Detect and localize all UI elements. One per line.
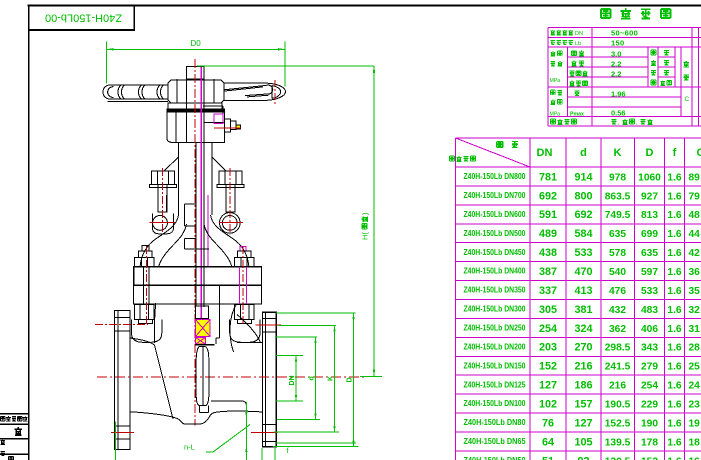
svg-text:1.6: 1.6 [667, 400, 681, 411]
svg-text:51: 51 [542, 455, 554, 460]
svg-text:105: 105 [574, 436, 592, 448]
svg-text:DN: DN [537, 147, 553, 159]
svg-text:1.6: 1.6 [667, 437, 681, 448]
svg-text:23: 23 [689, 400, 701, 411]
svg-text:、: 、 [618, 121, 623, 127]
svg-text:36: 36 [689, 267, 701, 278]
svg-text:337: 337 [539, 285, 557, 297]
svg-text:432: 432 [609, 305, 626, 316]
svg-text:35: 35 [689, 286, 701, 297]
svg-text:1.6: 1.6 [667, 172, 681, 183]
svg-text:190: 190 [641, 418, 658, 429]
svg-text:270: 270 [574, 342, 592, 354]
svg-text:Pmax: Pmax [570, 112, 584, 118]
svg-text:16: 16 [689, 456, 701, 460]
svg-text:Z40H-150Lb DN80: Z40H-150Lb DN80 [464, 418, 526, 427]
svg-text:25: 25 [689, 362, 701, 373]
svg-text:3.0: 3.0 [611, 49, 621, 58]
svg-text:C: C [685, 96, 690, 103]
svg-text:Z40H-150Lb DN500: Z40H-150Lb DN500 [464, 229, 526, 238]
svg-text:44: 44 [689, 229, 701, 240]
svg-text:DN: DN [289, 375, 296, 385]
svg-text:Z40H-150Lb DN700: Z40H-150Lb DN700 [464, 191, 526, 200]
svg-text:533: 533 [641, 286, 658, 297]
svg-text:Z40H-150Lb-00: Z40H-150Lb-00 [45, 12, 122, 24]
svg-text:1.6: 1.6 [667, 362, 681, 373]
svg-text:K: K [328, 376, 335, 381]
svg-text:18: 18 [689, 437, 701, 448]
svg-text:413: 413 [574, 285, 592, 297]
svg-text:1.6: 1.6 [667, 191, 681, 202]
svg-text:Z40H-150Lb DN150: Z40H-150Lb DN150 [464, 361, 526, 370]
svg-text:489: 489 [539, 228, 557, 240]
svg-text:438: 438 [539, 247, 557, 259]
svg-text:28: 28 [689, 343, 701, 354]
svg-text:64: 64 [542, 436, 554, 448]
svg-text:48: 48 [689, 210, 701, 221]
svg-text:476: 476 [609, 286, 626, 297]
svg-text:1060: 1060 [638, 172, 661, 183]
svg-text:978: 978 [609, 172, 626, 183]
svg-text:150: 150 [611, 38, 624, 47]
svg-text:139.5: 139.5 [605, 437, 631, 448]
svg-text:f: f [673, 147, 677, 159]
svg-text:203: 203 [539, 342, 557, 354]
svg-text:1.6: 1.6 [667, 229, 681, 240]
svg-text:470: 470 [574, 266, 592, 278]
svg-text:298.5: 298.5 [605, 343, 631, 354]
svg-text:591: 591 [539, 209, 557, 221]
svg-text:927: 927 [641, 191, 658, 202]
svg-text:635: 635 [641, 248, 658, 259]
svg-text:863.5: 863.5 [605, 191, 631, 202]
svg-text:1.6: 1.6 [667, 324, 681, 335]
svg-text:800: 800 [574, 190, 592, 202]
svg-text:Z40H-150Lb DN400: Z40H-150Lb DN400 [464, 267, 526, 276]
svg-text:152.5: 152.5 [605, 418, 631, 429]
svg-text:32: 32 [689, 305, 701, 316]
svg-text:1.6: 1.6 [667, 267, 681, 278]
svg-text:305: 305 [539, 304, 557, 316]
svg-text:914: 914 [574, 171, 592, 183]
svg-text:C: C [697, 147, 701, 159]
svg-text:157: 157 [574, 399, 592, 411]
svg-text:1.6: 1.6 [667, 343, 681, 354]
svg-text:MPa: MPa [550, 78, 561, 84]
svg-text:1.6: 1.6 [667, 418, 681, 429]
svg-text:Z40H-150Lb DN50: Z40H-150Lb DN50 [464, 456, 526, 460]
svg-text:254: 254 [641, 381, 658, 392]
svg-text:540: 540 [609, 267, 626, 278]
svg-text:Z40H-150Lb DN350: Z40H-150Lb DN350 [464, 286, 526, 295]
svg-text:2.2: 2.2 [611, 69, 621, 78]
svg-text:178: 178 [641, 437, 658, 448]
svg-text:n-L: n-L [184, 443, 195, 452]
svg-text:254: 254 [539, 323, 557, 335]
svg-text:533: 533 [574, 247, 592, 259]
svg-text:92: 92 [577, 455, 589, 460]
svg-text:D: D [347, 377, 354, 382]
svg-text:102: 102 [539, 399, 557, 411]
svg-text:42: 42 [689, 248, 701, 259]
svg-text:279: 279 [641, 362, 658, 373]
svg-text:324: 324 [574, 323, 592, 335]
svg-text:76: 76 [542, 417, 554, 429]
svg-text:79: 79 [689, 191, 701, 202]
svg-text:Z40H-150Lb DN65: Z40H-150Lb DN65 [464, 437, 526, 446]
svg-text:Z40H-150Lb DN250: Z40H-150Lb DN250 [464, 324, 526, 333]
svg-text:D: D [646, 147, 654, 159]
svg-text:Z40H-150Lb DN100: Z40H-150Lb DN100 [464, 399, 526, 408]
svg-text:d: d [580, 147, 587, 159]
svg-text:31: 31 [689, 324, 701, 335]
svg-text:127: 127 [539, 380, 557, 392]
svg-text:Lb: Lb [575, 41, 581, 47]
svg-text:Z40H-150Lb DN800: Z40H-150Lb DN800 [464, 172, 526, 181]
svg-text:813: 813 [641, 210, 658, 221]
svg-text:Z40H-150Lb DN600: Z40H-150Lb DN600 [464, 210, 526, 219]
svg-text:50~600: 50~600 [611, 28, 638, 37]
svg-text:387: 387 [539, 266, 557, 278]
svg-text:241.5: 241.5 [605, 362, 631, 373]
svg-text:152: 152 [641, 456, 658, 460]
svg-text:1.6: 1.6 [667, 248, 681, 259]
svg-text:343: 343 [641, 343, 658, 354]
svg-text:781: 781 [539, 171, 557, 183]
svg-text:d: d [309, 376, 316, 380]
svg-text:692: 692 [574, 209, 592, 221]
svg-text:89: 89 [689, 172, 701, 183]
svg-text:216: 216 [574, 361, 592, 373]
svg-text:0.56: 0.56 [611, 108, 626, 117]
svg-text:186: 186 [574, 380, 592, 392]
svg-text:1.6: 1.6 [667, 286, 681, 297]
svg-text:578: 578 [609, 248, 626, 259]
svg-text:19: 19 [689, 418, 701, 429]
svg-text:597: 597 [641, 267, 658, 278]
svg-text:362: 362 [609, 324, 626, 335]
svg-text:1.6: 1.6 [667, 456, 681, 460]
svg-text:DN: DN [575, 31, 583, 37]
svg-text:Z40H-150Lb DN200: Z40H-150Lb DN200 [464, 342, 526, 351]
svg-text:MPa: MPa [550, 112, 561, 118]
svg-text:749.5: 749.5 [605, 210, 631, 221]
svg-text:K: K [614, 147, 622, 159]
svg-text:120.5: 120.5 [605, 456, 631, 460]
svg-text:1.96: 1.96 [611, 89, 626, 98]
svg-text:Z40H-150Lb DN450: Z40H-150Lb DN450 [464, 248, 526, 257]
svg-text:692: 692 [539, 190, 557, 202]
svg-text:584: 584 [574, 228, 592, 240]
svg-text:190.5: 190.5 [605, 400, 631, 411]
svg-text:Z40H-150Lb DN125: Z40H-150Lb DN125 [464, 380, 526, 389]
svg-text:381: 381 [574, 304, 592, 316]
svg-text:216: 216 [609, 381, 626, 392]
svg-text:1.6: 1.6 [667, 210, 681, 221]
svg-text:699: 699 [641, 229, 658, 240]
svg-text:229: 229 [641, 400, 658, 411]
svg-text:D0: D0 [191, 39, 202, 48]
svg-text:127: 127 [574, 417, 592, 429]
svg-text:152: 152 [539, 361, 557, 373]
svg-text:1.6: 1.6 [667, 381, 681, 392]
svg-text:406: 406 [641, 324, 658, 335]
svg-text:、: 、 [636, 121, 641, 127]
svg-text:H(: H( [361, 232, 370, 240]
svg-text:635: 635 [609, 229, 626, 240]
svg-text:1.6: 1.6 [667, 305, 681, 316]
svg-text:483: 483 [641, 305, 658, 316]
svg-text:24: 24 [689, 381, 701, 392]
svg-text:Z40H-150Lb DN300: Z40H-150Lb DN300 [464, 305, 526, 314]
svg-text:2.2: 2.2 [611, 59, 621, 68]
